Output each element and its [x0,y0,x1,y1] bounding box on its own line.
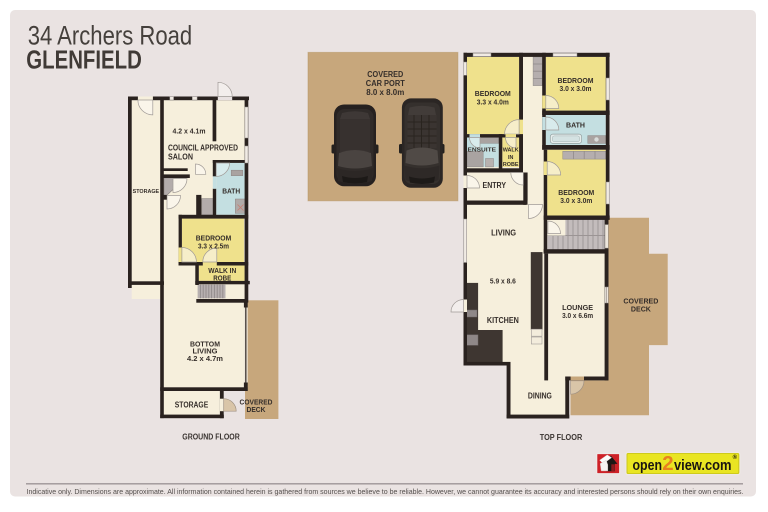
svg-text:2: 2 [662,452,673,475]
svg-text:4.2 x 4.1m: 4.2 x 4.1m [173,127,206,136]
svg-text:IN: IN [508,155,513,161]
svg-text:STORAGE: STORAGE [175,401,209,410]
svg-text:open: open [633,457,663,474]
svg-text:COUNCIL APPROVED: COUNCIL APPROVED [168,144,238,153]
svg-text:3.3 x 2.5m: 3.3 x 2.5m [198,241,229,250]
svg-text:COVERED: COVERED [367,70,403,79]
svg-text:DECK: DECK [247,405,267,414]
svg-text:®: ® [733,454,738,461]
svg-text:5.9 x 8.6: 5.9 x 8.6 [490,277,516,286]
svg-text:ROBE: ROBE [213,274,231,283]
svg-text:SALON: SALON [168,153,193,162]
svg-text:STORAGE: STORAGE [133,189,160,195]
svg-text:ENSUITE: ENSUITE [468,147,497,153]
svg-text:3.0 x 3.0m: 3.0 x 3.0m [560,84,592,93]
svg-text:3.0 x 6.6m: 3.0 x 6.6m [562,311,593,320]
svg-text:KITCHEN: KITCHEN [487,316,519,325]
svg-text:ROBE: ROBE [503,162,519,168]
svg-text:TOP FLOOR: TOP FLOOR [540,432,583,442]
svg-text:Indicative only. Dimensions ar: Indicative only. Dimensions are approxim… [27,488,744,496]
svg-text:view.com: view.com [674,457,732,474]
svg-text:GROUND FLOOR: GROUND FLOOR [182,432,240,442]
svg-text:3.3 x 4.0m: 3.3 x 4.0m [477,97,509,106]
svg-text:BATH: BATH [222,187,240,196]
svg-text:ENTRY: ENTRY [483,181,507,190]
svg-text:WALK: WALK [503,148,519,154]
svg-text:LIVING: LIVING [491,228,516,237]
svg-text:DINING: DINING [528,392,552,401]
svg-text:GLENFIELD: GLENFIELD [26,44,142,74]
svg-text:4.2 x 4.7m: 4.2 x 4.7m [187,354,224,363]
svg-text:8.0 x 8.0m: 8.0 x 8.0m [366,88,404,97]
svg-text:3.0 x 3.0m: 3.0 x 3.0m [560,196,592,205]
svg-text:DECK: DECK [631,304,652,313]
svg-text:CAR PORT: CAR PORT [366,79,405,88]
svg-text:BATH: BATH [566,120,585,129]
